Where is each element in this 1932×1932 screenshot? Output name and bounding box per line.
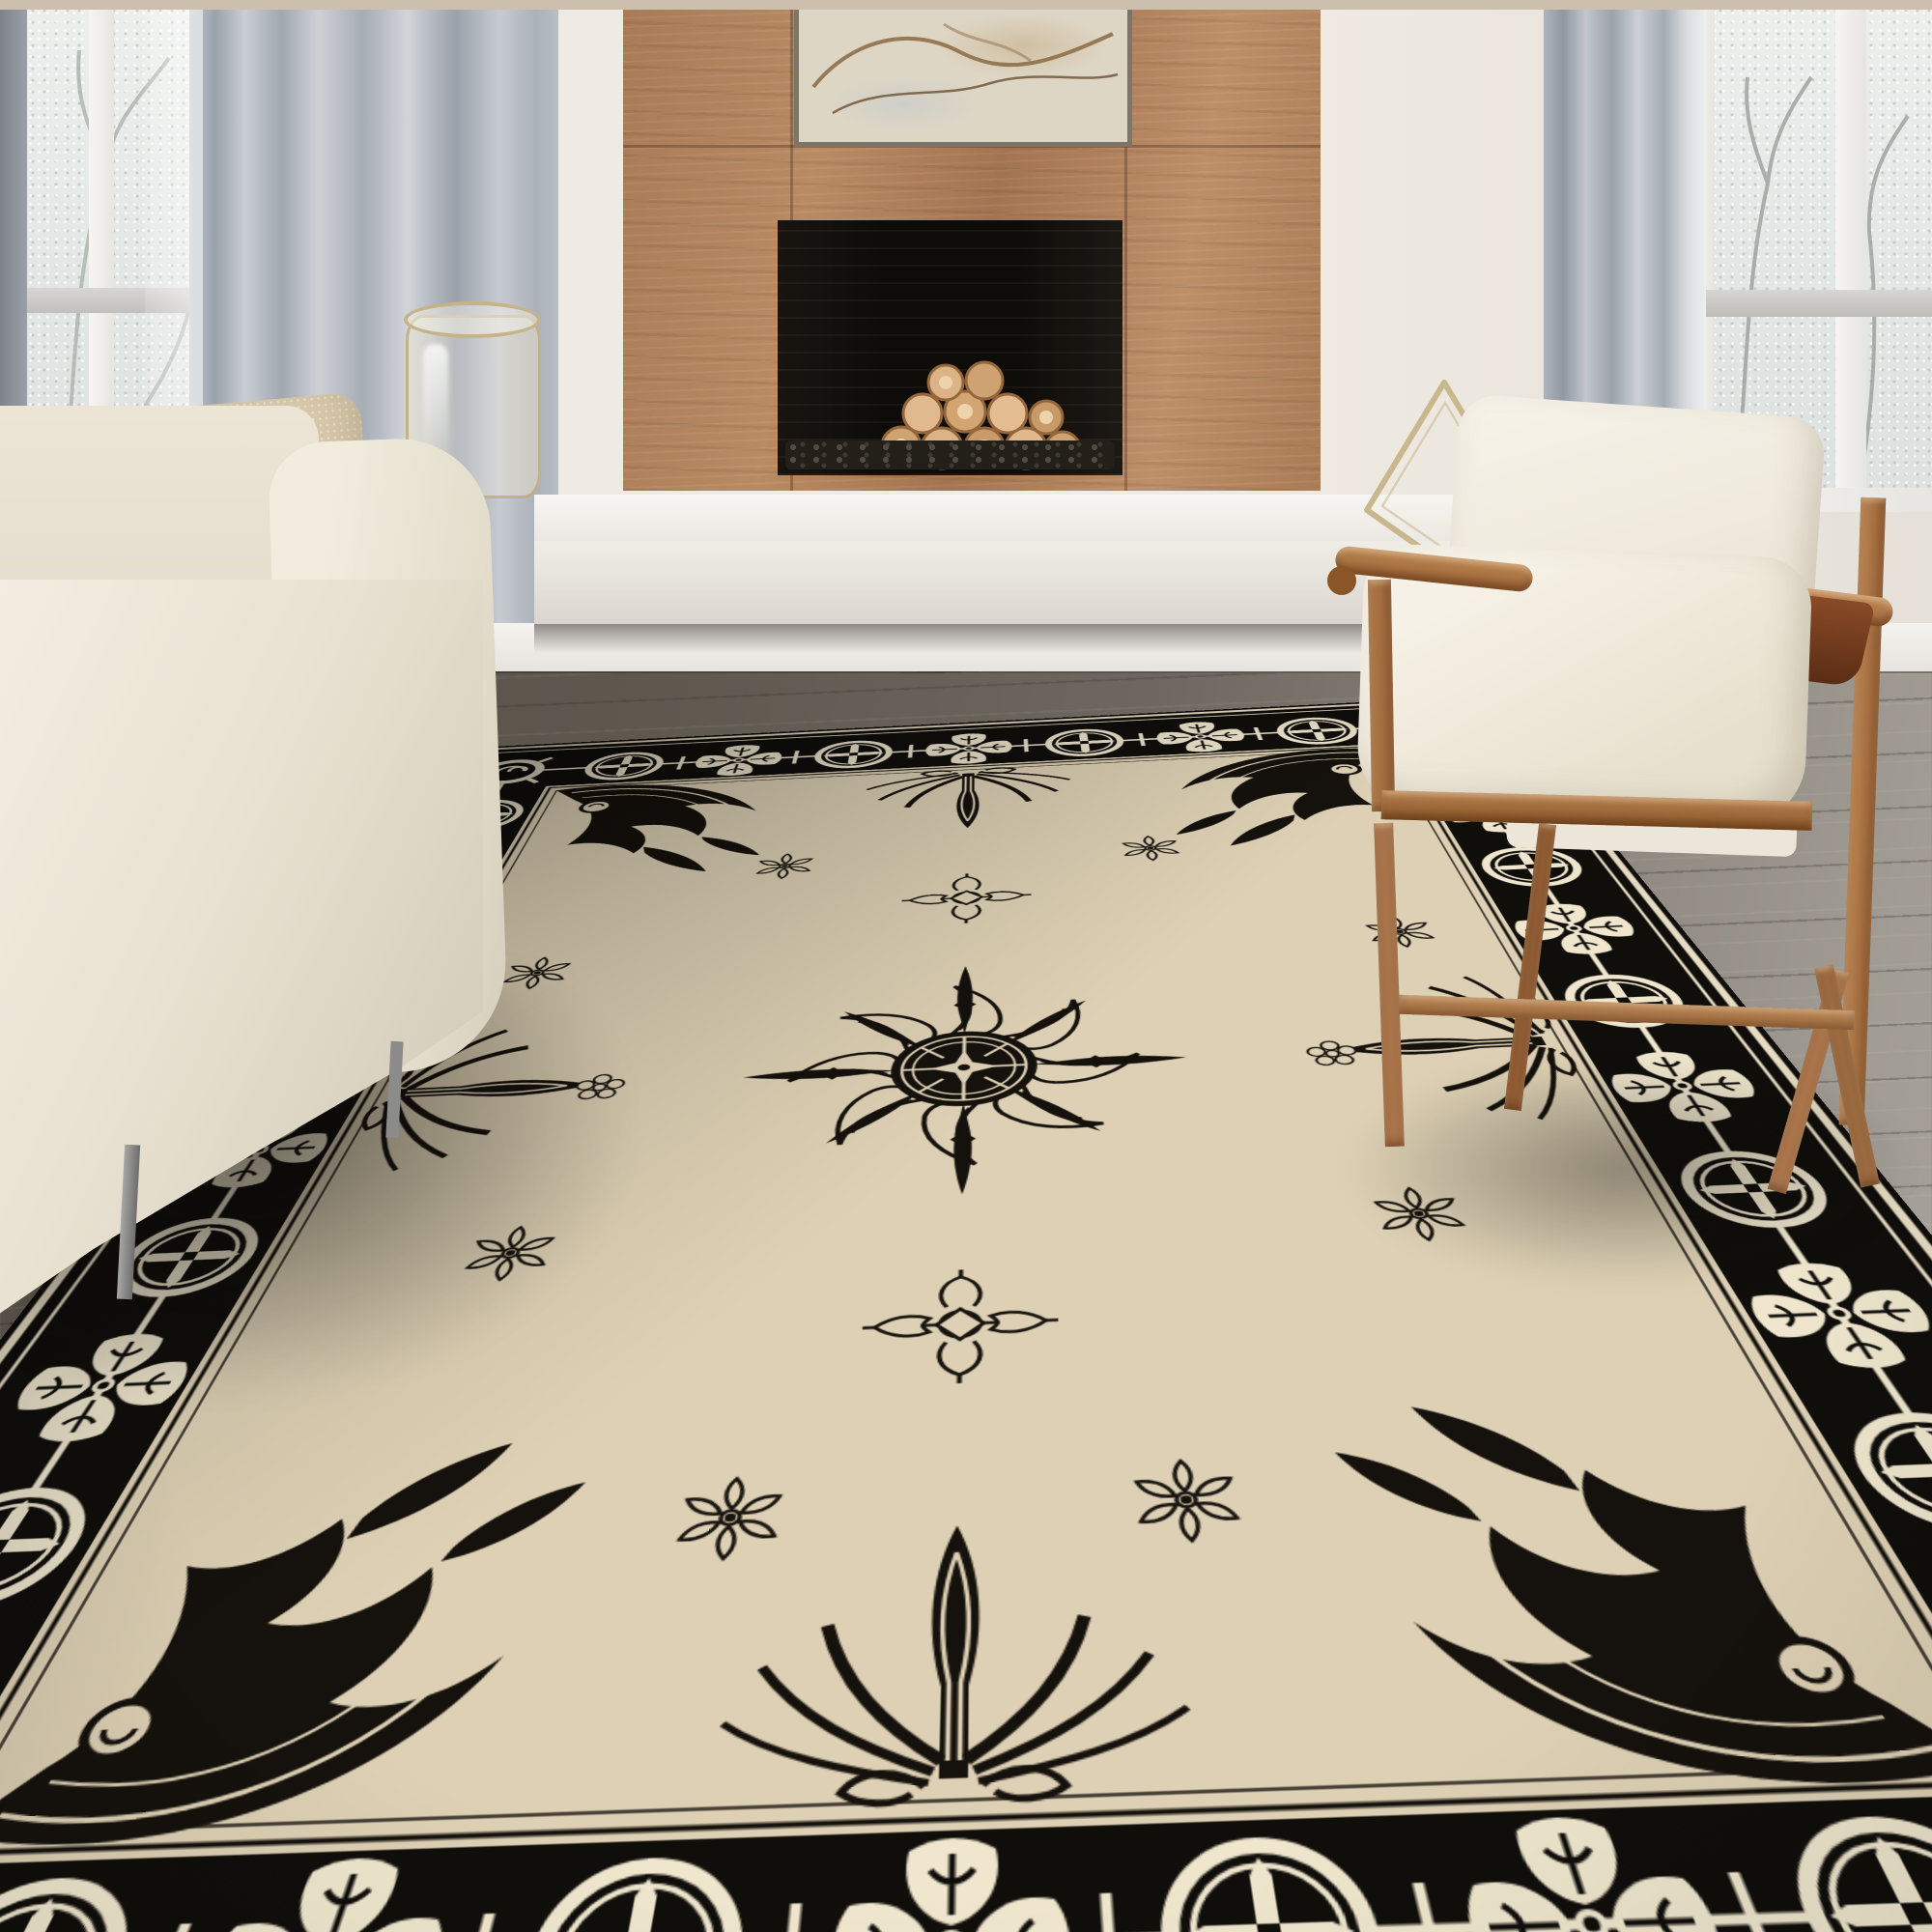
sofa-seat bbox=[0, 580, 483, 1323]
fireplace-firebox bbox=[778, 220, 1122, 475]
armchair-front-post-left bbox=[1368, 580, 1395, 811]
armchair-armrest-knob bbox=[1327, 566, 1356, 595]
firebox-pebble-bed bbox=[785, 440, 1115, 469]
window-right-sash-bar bbox=[1676, 290, 1932, 317]
armchair bbox=[1323, 386, 1932, 1256]
ceiling-trim bbox=[0, 0, 1932, 10]
armchair-leg-rear-left bbox=[1504, 823, 1556, 1111]
armchair-seat-cushion bbox=[1355, 543, 1812, 827]
armchair-leg-front-left bbox=[1374, 823, 1405, 1147]
living-room-scene bbox=[0, 0, 1932, 1932]
abstract-artwork bbox=[794, 0, 1132, 147]
sofa bbox=[0, 328, 580, 1352]
artwork-brushstrokes bbox=[799, 5, 1127, 142]
armchair-crossbar bbox=[1399, 995, 1855, 1030]
